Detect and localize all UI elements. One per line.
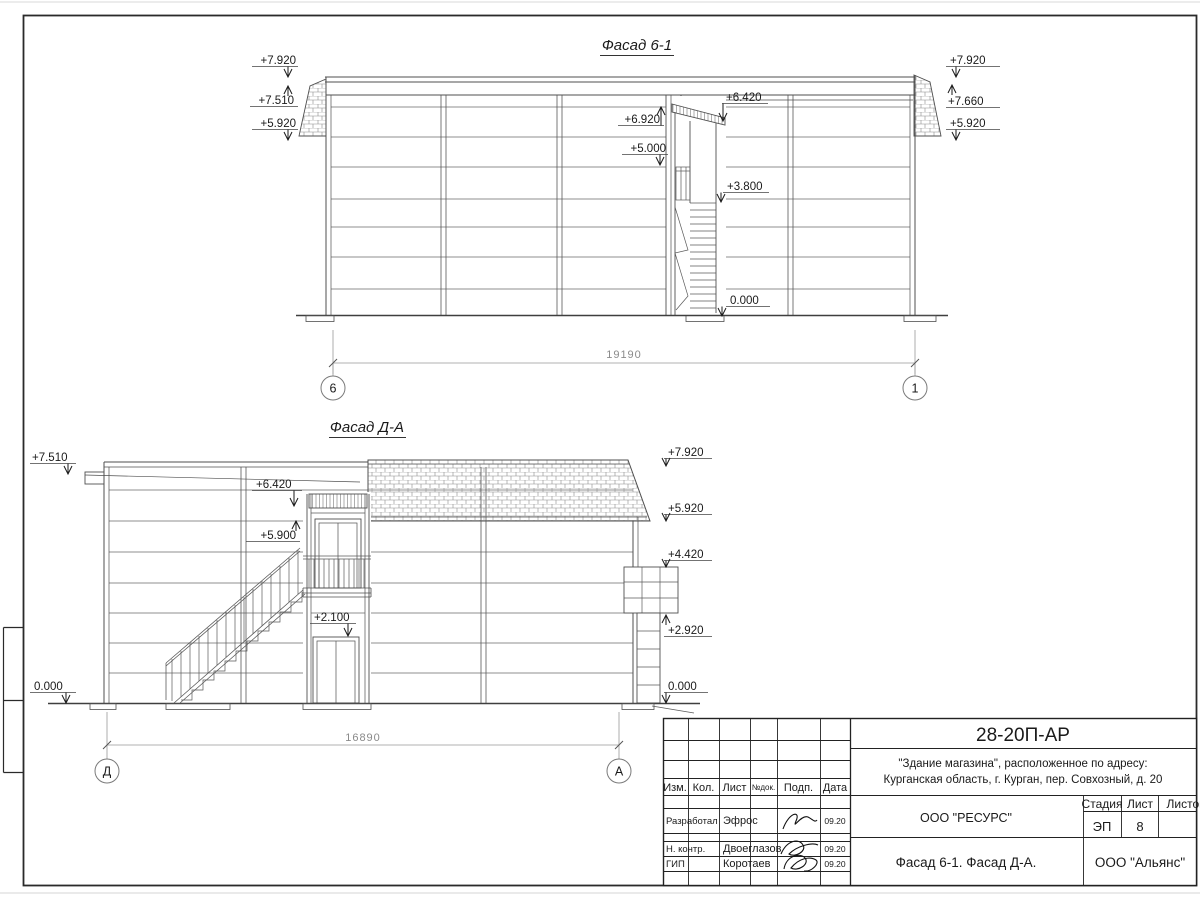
elevation-mark: +5.000 xyxy=(622,143,668,165)
facade-6-1-left-gable xyxy=(299,79,326,136)
row3-name: Коротаев xyxy=(723,858,771,870)
org-top: ООО "РЕСУРС" xyxy=(920,811,1012,825)
sheet-label: Лист xyxy=(1127,797,1154,811)
facade-d-a-dimensions: 16890 Д А xyxy=(95,712,631,783)
org-bottom: ООО "Альянс" xyxy=(1095,855,1185,870)
elevation-mark: +5.900 xyxy=(246,521,300,542)
col-data: Дата xyxy=(823,782,848,794)
elevation-mark: 0.000 xyxy=(30,681,76,703)
axis-label-1: 1 xyxy=(912,382,919,396)
svg-text:+7.920: +7.920 xyxy=(668,447,704,459)
elevation-mark: +7.510 xyxy=(250,86,298,107)
facade-d-a-ground xyxy=(48,704,700,714)
row1-name: Эфрос xyxy=(723,815,758,827)
facade-6-1-columns xyxy=(441,95,793,315)
stage-value: ЭП xyxy=(1093,819,1112,834)
elevation-mark: +5.920 xyxy=(946,118,1000,140)
elevation-mark: +5.920 xyxy=(252,118,298,140)
facade-6-1-dim-value: 19190 xyxy=(606,349,642,361)
svg-text:+6.420: +6.420 xyxy=(256,479,292,491)
facade-6-1-stair-tower xyxy=(666,95,726,322)
svg-text:+6.420: +6.420 xyxy=(726,92,762,104)
facade-6-1-walls-parapet xyxy=(325,75,915,315)
svg-text:0.000: 0.000 xyxy=(730,295,759,307)
col-kol: Кол. xyxy=(693,782,715,794)
facade-d-a-pillar xyxy=(637,613,660,703)
title-block: Изм. Кол. Лист №док. Подп. Дата Разработ… xyxy=(663,719,1200,886)
facade-6-1-elevation-marks: +7.920 +7.510 +5.920 +7.920 xyxy=(250,55,1000,316)
svg-text:0.000: 0.000 xyxy=(668,681,697,693)
row2-date: 09.20 xyxy=(824,844,846,854)
svg-text:+5.920: +5.920 xyxy=(668,503,704,515)
facade-d-a-title: Фасад Д-А xyxy=(330,419,404,436)
row3-role: ГИП xyxy=(666,859,685,870)
elevation-mark: +5.920 xyxy=(662,503,712,521)
facade-6-1-right-gable xyxy=(914,75,941,136)
elevation-mark: +7.660 xyxy=(946,85,1000,108)
svg-text:+2.100: +2.100 xyxy=(314,612,350,624)
facade-6-1-ground xyxy=(296,316,948,322)
facade-d-a-sign-box xyxy=(624,567,678,613)
row1-role: Разработал xyxy=(666,816,718,827)
sheets-label: Листов xyxy=(1167,797,1200,811)
svg-text:+7.920: +7.920 xyxy=(261,55,297,67)
drawing-canvas: Фасад 6-1 xyxy=(0,0,1200,900)
elevation-mark: +7.510 xyxy=(30,452,76,474)
axis-label-a: А xyxy=(615,765,624,779)
col-ndok: №док. xyxy=(752,783,775,792)
sheet-name: Фасад 6-1. Фасад Д-А. xyxy=(896,855,1037,870)
facade-d-a-door-canopy xyxy=(309,494,367,508)
elevation-mark: 0.000 xyxy=(662,681,708,703)
row2-role: Н. контр. xyxy=(666,844,705,855)
drawing-sheet: Фасад 6-1 xyxy=(0,0,1200,900)
svg-text:+7.660: +7.660 xyxy=(948,96,984,108)
elevation-mark: +7.920 xyxy=(946,55,1000,77)
svg-text:+5.920: +5.920 xyxy=(261,118,297,130)
facade-d-a-stair-tower xyxy=(303,492,371,703)
svg-text:+2.920: +2.920 xyxy=(668,625,704,637)
svg-text:+5.000: +5.000 xyxy=(631,143,667,155)
axis-label-6: 6 xyxy=(330,382,337,396)
facade-d-a-external-stair xyxy=(166,548,305,703)
col-izm: Изм. xyxy=(663,782,687,794)
facade-d-a-stair-balusters xyxy=(172,550,298,701)
svg-text:+5.920: +5.920 xyxy=(950,118,986,130)
elevation-mark: +7.920 xyxy=(252,55,298,77)
elevation-mark: +2.920 xyxy=(662,615,712,637)
project-line-1: "Здание магазина", расположенное по адре… xyxy=(898,758,1147,770)
facade-6-1-title: Фасад 6-1 xyxy=(602,37,672,54)
sheet-value: 8 xyxy=(1136,819,1143,834)
facade-6-1-siding xyxy=(331,107,910,289)
stage-label: Стадия xyxy=(1082,797,1123,811)
facade-6-1-dimensions: 19190 6 1 xyxy=(321,330,927,400)
row1-date: 09.20 xyxy=(824,816,846,826)
col-list: Лист xyxy=(723,782,747,794)
elevation-mark: +6.420 xyxy=(252,479,302,506)
svg-text:+7.920: +7.920 xyxy=(950,55,986,67)
facade-d-a: Фасад Д-А xyxy=(30,419,712,783)
row3-date: 09.20 xyxy=(824,859,846,869)
svg-text:+7.510: +7.510 xyxy=(259,95,295,107)
elevation-mark: +4.420 xyxy=(662,549,712,567)
elevation-mark: +7.920 xyxy=(662,447,712,466)
axis-label-d: Д xyxy=(103,765,112,779)
svg-text:+6.920: +6.920 xyxy=(625,114,661,126)
svg-text:+3.800: +3.800 xyxy=(727,181,763,193)
row2-name: Двоеглазов xyxy=(723,843,782,855)
left-margin-stamp xyxy=(4,628,24,773)
project-line-2: Курганская область, г. Курган, пер. Совх… xyxy=(884,774,1163,786)
facade-d-a-roof xyxy=(368,460,650,521)
svg-text:+4.420: +4.420 xyxy=(668,549,704,561)
facade-d-a-dim-value: 16890 xyxy=(345,732,381,744)
svg-text:0.000: 0.000 xyxy=(34,681,63,693)
elevation-mark: +6.920 xyxy=(618,107,665,126)
facade-6-1: Фасад 6-1 xyxy=(250,37,1000,400)
col-podp: Подп. xyxy=(784,782,813,794)
svg-text:+5.900: +5.900 xyxy=(261,530,297,542)
elevation-mark: +6.420 xyxy=(719,92,768,121)
svg-text:+7.510: +7.510 xyxy=(32,452,68,464)
document-code: 28-20П-АР xyxy=(976,725,1070,746)
